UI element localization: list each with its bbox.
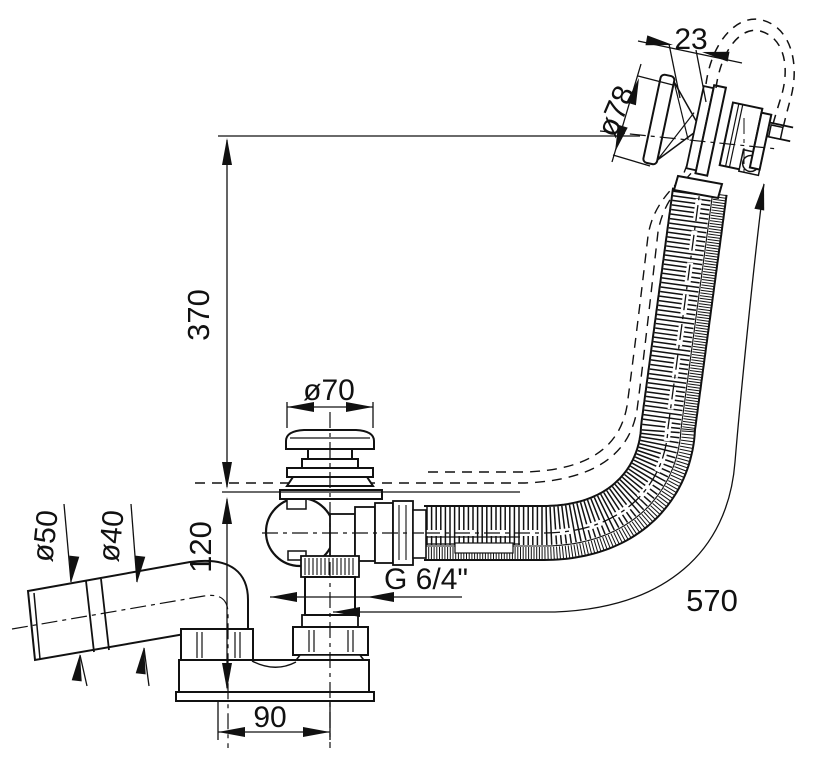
cable-clamp [769, 125, 783, 139]
arrowhead [222, 138, 232, 165]
dim-70-label: ø70 [303, 374, 355, 407]
dim-thread-label: G 6/4" [384, 563, 468, 596]
arrowhead [754, 183, 764, 211]
technical-drawing: 23 ø78 370 ø70 ø50 ø40 120 G 6/4" 570 90 [0, 0, 815, 762]
dim-370-label: 370 [181, 289, 216, 341]
drawing-canvas: 23 ø78 370 ø70 ø50 ø40 120 G 6/4" 570 90 [0, 0, 815, 762]
base-body [179, 660, 369, 692]
arrowhead [218, 727, 245, 737]
arrowhead [136, 647, 146, 674]
dim-50-line [64, 504, 71, 582]
overflow-knob-assembly [643, 74, 799, 191]
dim-120-label: 120 [183, 521, 218, 573]
dim-570-label: 570 [686, 583, 738, 618]
dim-90-label: 90 [253, 701, 286, 734]
arrowhead [222, 462, 232, 489]
outlet-step-2 [355, 507, 375, 561]
base-flange [176, 692, 374, 701]
dim-40-label: ø40 [92, 509, 130, 564]
arrowhead [72, 654, 82, 681]
arrowhead [69, 556, 79, 583]
arrowhead [222, 497, 232, 524]
outlet-step-1 [330, 514, 355, 558]
corrugated-overflow-hose [424, 188, 727, 560]
dim-40-line [131, 504, 137, 582]
arrowhead [646, 35, 674, 45]
dim-23-label: 23 [674, 23, 707, 56]
arrowhead [303, 727, 330, 737]
arrowhead [270, 592, 297, 602]
dim-50-label: ø50 [26, 509, 64, 564]
